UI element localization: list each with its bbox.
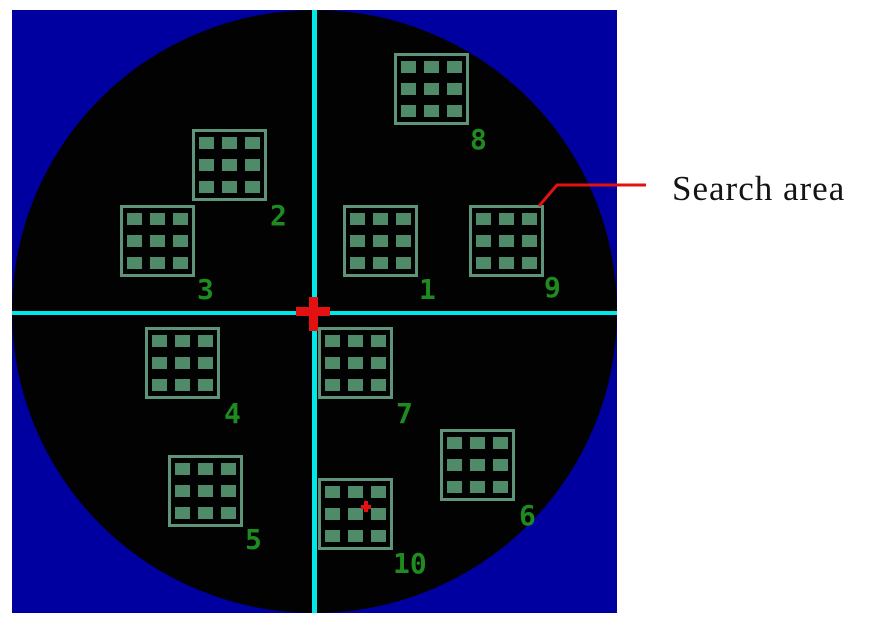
search-area-number-1: 1: [419, 278, 436, 302]
die-cell: [150, 235, 165, 247]
die-cell: [325, 379, 340, 391]
die-cell: [348, 357, 363, 369]
die-cell: [447, 61, 462, 73]
die-cell: [199, 159, 214, 171]
die-cell: [371, 357, 386, 369]
die-cell: [198, 335, 213, 347]
die-cell: [371, 508, 386, 520]
wafer-map: 12345678910: [12, 10, 617, 613]
die-cell: [373, 213, 388, 225]
die-cell: [470, 459, 485, 471]
search-area-number-7: 7: [396, 402, 413, 426]
search-area-number-9: 9: [544, 276, 561, 300]
die-cell: [424, 105, 439, 117]
figure-canvas: 12345678910 Search area: [0, 0, 885, 634]
die-cell: [470, 437, 485, 449]
search-area-number-2: 2: [270, 204, 287, 228]
search-area-number-3: 3: [197, 278, 214, 302]
die-cell: [371, 486, 386, 498]
die-cell: [499, 213, 514, 225]
die-cell: [493, 481, 508, 493]
die-cell: [175, 379, 190, 391]
die-cell: [173, 235, 188, 247]
die-cell: [348, 379, 363, 391]
alignment-point-icon: [364, 501, 368, 512]
die-cell: [325, 335, 340, 347]
die-cell: [373, 257, 388, 269]
die-cell: [401, 83, 416, 95]
die-cell: [350, 235, 365, 247]
die-cell: [175, 357, 190, 369]
search-area-9: [469, 205, 544, 277]
die-cell: [222, 159, 237, 171]
die-cell: [373, 235, 388, 247]
die-cell: [348, 530, 363, 542]
die-cell: [175, 485, 190, 497]
search-area-2: [192, 129, 267, 201]
search-area-5: [168, 455, 243, 527]
die-cell: [221, 485, 236, 497]
die-cell: [371, 335, 386, 347]
search-area-10: [318, 478, 393, 550]
die-cell: [424, 61, 439, 73]
die-cell: [401, 61, 416, 73]
die-cell: [493, 437, 508, 449]
search-area-4: [145, 327, 220, 399]
die-cell: [499, 235, 514, 247]
die-cell: [199, 181, 214, 193]
die-cell: [173, 213, 188, 225]
die-cell: [221, 463, 236, 475]
die-cell: [152, 357, 167, 369]
wafer-center-cross-icon: [309, 297, 318, 331]
die-cell: [152, 335, 167, 347]
die-cell: [199, 137, 214, 149]
die-cell: [447, 83, 462, 95]
die-cell: [221, 507, 236, 519]
die-cell: [396, 213, 411, 225]
die-cell: [245, 159, 260, 171]
alignment-point-icon: [361, 501, 371, 512]
die-cell: [371, 379, 386, 391]
search-area-callout-label: Search area: [672, 170, 845, 208]
die-cell: [173, 257, 188, 269]
search-area-6: [440, 429, 515, 501]
search-area-number-10: 10: [393, 552, 427, 576]
die-cell: [447, 437, 462, 449]
die-cell: [424, 83, 439, 95]
die-cell: [198, 379, 213, 391]
die-cell: [245, 137, 260, 149]
die-cell: [350, 257, 365, 269]
die-cell: [175, 507, 190, 519]
die-cell: [198, 357, 213, 369]
die-cell: [198, 507, 213, 519]
die-cell: [222, 181, 237, 193]
search-area-7: [318, 327, 393, 399]
die-cell: [476, 235, 491, 247]
die-cell: [348, 335, 363, 347]
die-cell: [447, 105, 462, 117]
die-cell: [222, 137, 237, 149]
die-cell: [522, 257, 537, 269]
die-cell: [325, 530, 340, 542]
search-area-number-4: 4: [224, 402, 241, 426]
die-cell: [493, 459, 508, 471]
die-cell: [198, 485, 213, 497]
search-area-3: [120, 205, 195, 277]
die-cell: [396, 235, 411, 247]
die-cell: [152, 379, 167, 391]
die-cell: [447, 459, 462, 471]
die-cell: [470, 481, 485, 493]
die-cell: [447, 481, 462, 493]
search-area-1: [343, 205, 418, 277]
die-cell: [522, 213, 537, 225]
die-cell: [150, 257, 165, 269]
die-cell: [127, 235, 142, 247]
search-area-8: [394, 53, 469, 125]
die-cell: [175, 463, 190, 475]
die-cell: [499, 257, 514, 269]
die-cell: [371, 530, 386, 542]
die-cell: [401, 105, 416, 117]
search-area-number-6: 6: [519, 504, 536, 528]
die-cell: [245, 181, 260, 193]
die-cell: [476, 257, 491, 269]
die-cell: [350, 213, 365, 225]
die-cell: [150, 213, 165, 225]
die-cell: [127, 213, 142, 225]
search-area-number-5: 5: [245, 528, 262, 552]
die-cell: [325, 486, 340, 498]
search-area-number-8: 8: [470, 128, 487, 152]
die-cell: [396, 257, 411, 269]
die-cell: [175, 335, 190, 347]
die-cell: [198, 463, 213, 475]
die-cell: [522, 235, 537, 247]
die-cell: [127, 257, 142, 269]
die-cell: [325, 508, 340, 520]
die-cell: [476, 213, 491, 225]
die-cell: [348, 486, 363, 498]
die-cell: [325, 357, 340, 369]
